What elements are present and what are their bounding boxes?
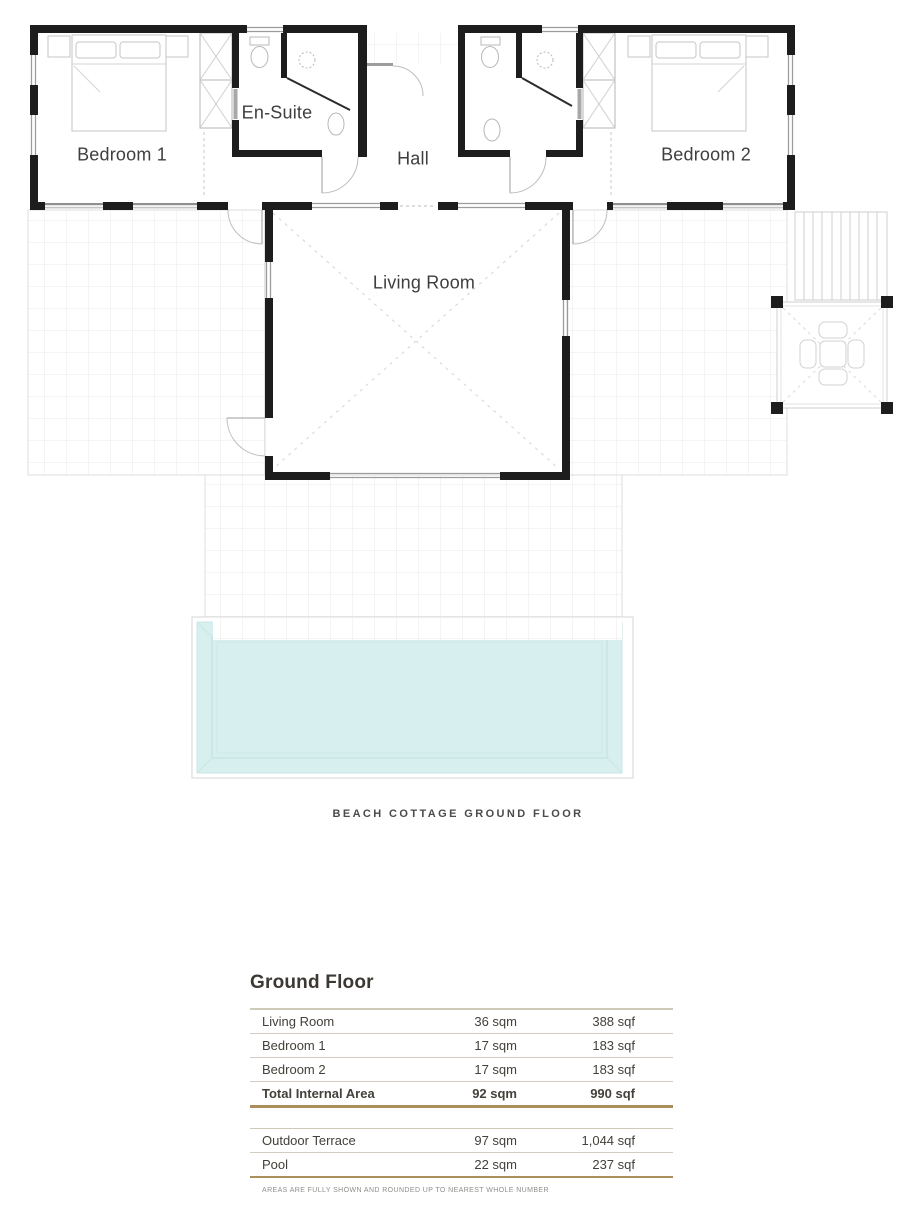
wardrobe-icon-bedroom1: [200, 33, 232, 198]
sqm-cell: 22 sqm: [474, 1157, 517, 1172]
sqf-cell: 183 sqf: [592, 1062, 635, 1077]
sqf-cell: 183 sqf: [592, 1038, 635, 1053]
floor-plan-drawing: [0, 0, 916, 830]
room-name-cell: Bedroom 1: [262, 1038, 326, 1053]
room-label-living-room: Living Room: [373, 273, 475, 294]
sqf-cell: 990 sqf: [590, 1086, 635, 1101]
room-name-cell: Living Room: [262, 1014, 334, 1029]
bed-icon-bedroom2: [628, 35, 768, 131]
room-label-bedroom2: Bedroom 2: [661, 145, 751, 166]
table-row: Outdoor Terrace 97 sqm 1,044 sqf: [250, 1129, 673, 1153]
room-label-hall: Hall: [397, 149, 429, 170]
gazebo-deck: [771, 296, 893, 414]
internal-areas-table: Living Room 36 sqm 388 sqf Bedroom 1 17 …: [250, 1008, 673, 1108]
sqm-cell: 17 sqm: [474, 1062, 517, 1077]
room-label-ensuite: En-Suite: [242, 103, 313, 124]
sqm-cell: 36 sqm: [474, 1014, 517, 1029]
area-table-footnote: AREAS ARE FULLY SHOWN AND ROUNDED UP TO …: [250, 1187, 673, 1194]
room-label-bedroom1: Bedroom 1: [77, 145, 167, 166]
sqf-cell: 237 sqf: [592, 1157, 635, 1172]
room-name-cell: Total Internal Area: [262, 1086, 375, 1101]
stairs: [795, 212, 887, 300]
wardrobe-icon-bedroom2: [583, 33, 615, 198]
page: Bedroom 1 En-Suite Hall Bedroom 2 Living…: [0, 0, 916, 1220]
table-row-total: Total Internal Area 92 sqm 990 sqf: [250, 1082, 673, 1108]
living-room-ceiling-lines: [273, 213, 559, 469]
bed-icon-bedroom1: [48, 35, 188, 131]
table-row: Bedroom 1 17 sqm 183 sqf: [250, 1034, 673, 1058]
plan-caption: BEACH COTTAGE GROUND FLOOR: [0, 808, 916, 820]
table-row: Bedroom 2 17 sqm 183 sqf: [250, 1058, 673, 1082]
table-row: Living Room 36 sqm 388 sqf: [250, 1010, 673, 1034]
sqf-cell: 1,044 sqf: [582, 1133, 636, 1148]
sqm-cell: 17 sqm: [474, 1038, 517, 1053]
sqm-cell: 92 sqm: [472, 1086, 517, 1101]
floor-plan: Bedroom 1 En-Suite Hall Bedroom 2 Living…: [0, 0, 916, 830]
area-table: Ground Floor Living Room 36 sqm 388 sqf …: [250, 972, 673, 1194]
sqf-cell: 388 sqf: [592, 1014, 635, 1029]
area-table-title: Ground Floor: [250, 972, 673, 994]
pool: [192, 617, 633, 778]
room-name-cell: Pool: [262, 1157, 288, 1172]
outdoor-areas-table: Outdoor Terrace 97 sqm 1,044 sqf Pool 22…: [250, 1128, 673, 1178]
table-row: Pool 22 sqm 237 sqf: [250, 1153, 673, 1178]
sqm-cell: 97 sqm: [474, 1133, 517, 1148]
room-name-cell: Outdoor Terrace: [262, 1133, 356, 1148]
shower-screens: [287, 78, 572, 110]
room-name-cell: Bedroom 2: [262, 1062, 326, 1077]
